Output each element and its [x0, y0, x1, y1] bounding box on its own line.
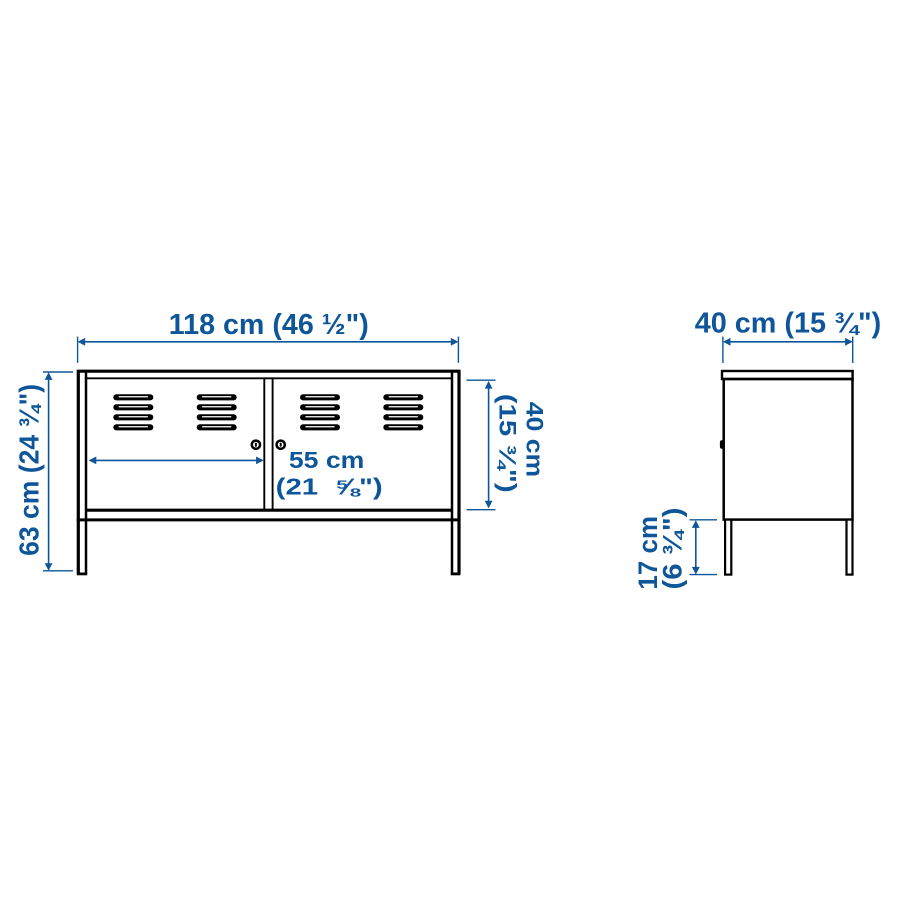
svg-text:55 cm: 55 cm: [289, 447, 365, 473]
svg-text:40 cm: 40 cm: [520, 402, 547, 477]
svg-text:118 cm (46 ½"): 118 cm (46 ½"): [169, 309, 369, 341]
svg-text:(15 ¾"): (15 ¾"): [494, 394, 521, 493]
svg-text:(21 ⅝"): (21 ⅝"): [276, 473, 383, 499]
svg-text:40 cm (15 ¾"): 40 cm (15 ¾"): [695, 308, 882, 340]
svg-text:(6 ¾"): (6 ¾"): [658, 508, 688, 590]
svg-text:63 cm (24 ¾"): 63 cm (24 ¾"): [13, 384, 45, 556]
